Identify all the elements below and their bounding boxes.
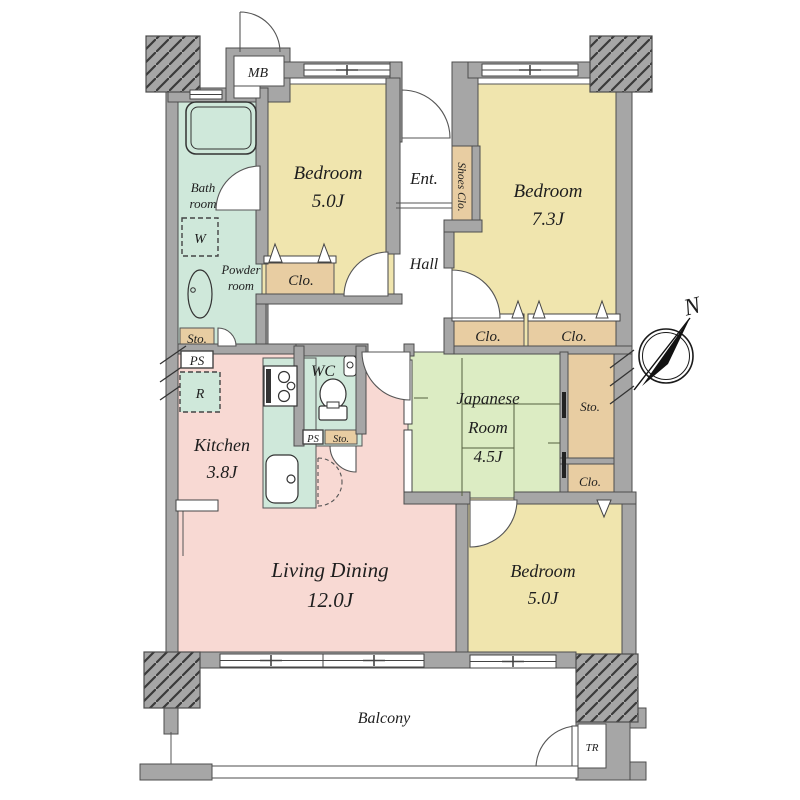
bath-label-2: room — [190, 196, 217, 211]
window-living-2 — [323, 654, 424, 667]
column-top-left — [146, 36, 200, 92]
entrance-step — [396, 203, 452, 208]
trunk-room-label: TR — [586, 742, 599, 754]
japanese-room-area-label: 4.5J — [474, 447, 504, 466]
wc-label: WC — [311, 363, 335, 380]
floorplan-canvas: N MB Bath room W Powder room Sto. PS R K… — [0, 0, 800, 800]
window-bath — [190, 90, 222, 99]
bedroom2-label: Bedroom — [514, 181, 583, 202]
closet-right-label: Clo. — [579, 474, 601, 489]
column-top-right — [590, 36, 652, 92]
door-trunk — [536, 726, 579, 768]
window-bedroom3 — [470, 655, 556, 668]
powder-label-2: room — [228, 279, 254, 293]
washer-label: W — [194, 232, 207, 247]
kitchen-area-label: 3.8J — [206, 462, 239, 482]
bathtub-icon — [186, 102, 256, 154]
storage-left-label: Sto. — [187, 331, 207, 346]
storage-right-label: Sto. — [580, 399, 600, 414]
bedroom1-area-label: 5.0J — [312, 191, 346, 212]
japanese-room-label-2: Room — [467, 418, 508, 437]
floorplan-page: N MB Bath room W Powder room Sto. PS R K… — [0, 0, 800, 800]
bedroom1-label: Bedroom — [294, 163, 363, 184]
shoes-closet-label: Shoes Clo. — [455, 162, 467, 211]
balcony-label: Balcony — [358, 710, 411, 727]
bath-label-1: Bath — [191, 180, 216, 195]
window-top-right — [482, 64, 578, 76]
door-mb — [240, 12, 280, 52]
window-top-left — [304, 64, 390, 76]
sink-icon — [266, 455, 298, 503]
bedroom3-label: Bedroom — [510, 561, 575, 581]
japanese-room-label-1: Japanese — [456, 389, 520, 408]
stove-icon — [264, 366, 297, 406]
door-entrance — [402, 90, 450, 138]
refrigerator-label: R — [195, 387, 205, 402]
bedroom2-area-label: 7.3J — [532, 209, 566, 230]
living-dining-area-label: 12.0J — [307, 588, 355, 612]
column-bottom-right — [576, 654, 638, 722]
bedroom3-area-label: 5.0J — [528, 588, 560, 608]
ps-left-label: PS — [189, 353, 205, 368]
entrance-label: Ent. — [409, 169, 438, 188]
kitchen-partition — [176, 500, 218, 511]
balcony-railing — [212, 766, 578, 778]
powder-label-1: Powder — [221, 263, 261, 277]
closet-bedroom1-label: Clo. — [288, 273, 313, 289]
closet-bedroom2b-label: Clo. — [561, 329, 586, 345]
hall-label: Hall — [409, 256, 439, 273]
ps-wc-label: PS — [306, 434, 319, 445]
column-bottom-left — [144, 652, 200, 708]
closet-bedroom2a-label: Clo. — [475, 329, 500, 345]
compass-north-label: N — [680, 292, 705, 322]
window-living-1 — [220, 654, 323, 667]
kitchen-label: Kitchen — [193, 435, 250, 455]
meter-box-label: MB — [247, 66, 269, 81]
storage-wc-label: Sto. — [333, 434, 349, 445]
compass-north-icon: N — [634, 292, 705, 390]
living-dining-label: Living Dining — [270, 558, 388, 582]
